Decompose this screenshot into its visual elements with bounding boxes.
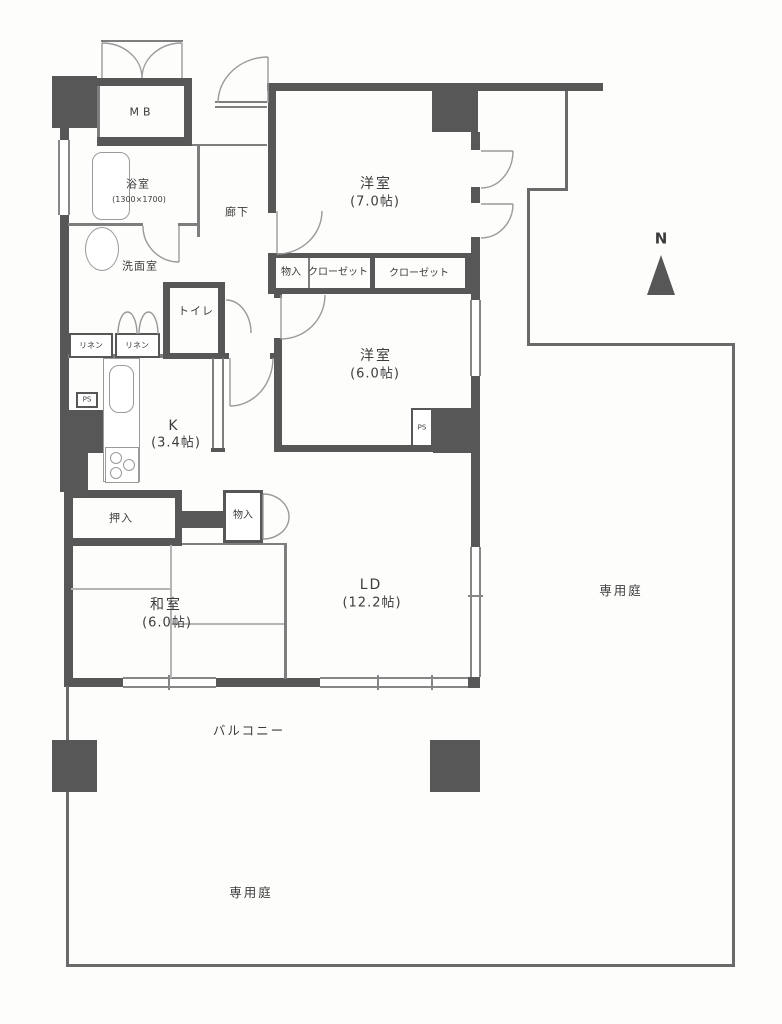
entrance-threshold-b xyxy=(215,106,267,108)
wall-toilet-left xyxy=(163,282,170,358)
garden-line-2 xyxy=(528,188,568,191)
room-label-linen-2: リネン xyxy=(125,342,149,350)
room-label-linen-1: リネン xyxy=(79,342,103,350)
garden-line-left xyxy=(66,686,69,967)
room-label-bathroom-size: (1300×1700) xyxy=(112,196,166,204)
wall-west2-left xyxy=(274,338,282,452)
wall-ps-block xyxy=(433,408,478,453)
wall-closet-row-left xyxy=(268,258,276,288)
north-arrow-icon xyxy=(647,255,675,295)
wall-bottom-2 xyxy=(216,678,320,687)
wall-hall-bath xyxy=(197,146,200,237)
room-label-living-dining-size: (12.2帖) xyxy=(342,597,401,610)
floor-plan: MB 浴室 (1300×1700) 洗面室 トイレ リネン リネン 廊下 物入 … xyxy=(0,0,782,1024)
garden-line-1 xyxy=(565,91,568,191)
room-label-oshiire: 押入 xyxy=(109,513,133,524)
west1-east-door-upper-arc xyxy=(480,150,513,188)
wall-kitchen-cap xyxy=(211,448,225,452)
wall-se-corner xyxy=(468,677,480,688)
room-label-west1: 洋室 xyxy=(360,177,392,191)
wall-mb-top xyxy=(97,78,187,86)
wall-right-1 xyxy=(471,132,480,150)
room-label-mb: MB xyxy=(129,107,154,118)
wall-oshiire-storage-stub xyxy=(180,511,223,528)
wall-toilet-bottom xyxy=(163,353,229,359)
wall-left-block-a xyxy=(60,410,103,453)
wall-west1-left xyxy=(268,91,276,213)
room-label-japanese-room-size: (6.0帖) xyxy=(142,617,192,630)
room-label-storage-1: 物入 xyxy=(281,268,301,278)
toilet-door-arc xyxy=(225,300,251,333)
wall-toilet-top xyxy=(163,282,225,288)
window-west2-east xyxy=(470,300,481,376)
label-ps-west2: PS xyxy=(418,425,427,432)
washbasin xyxy=(85,227,119,271)
window-ld-east xyxy=(470,547,481,677)
window-sash-tick xyxy=(468,595,483,597)
wall-porch-left xyxy=(184,78,192,146)
room-label-kitchen-size: (3.4帖) xyxy=(151,437,201,450)
wall-bottom-1 xyxy=(64,678,123,687)
wall-toilet-right xyxy=(218,282,225,358)
west2-door-arc xyxy=(280,294,325,339)
wall-oshiire-bottom xyxy=(64,538,182,546)
wall-closet-divider xyxy=(370,258,375,288)
room-label-closet-2: クローゼット xyxy=(389,269,449,279)
stove-burner xyxy=(123,459,135,471)
room-label-living-dining: LD xyxy=(360,578,383,592)
wall-mb-bottom xyxy=(97,137,187,146)
wall-left-1 xyxy=(60,128,69,140)
area-label-garden-bottom: 専用庭 xyxy=(229,887,273,900)
wall-west2-bottom xyxy=(274,445,434,452)
corridor-door-arc xyxy=(229,358,273,406)
wall-ne-corner-block xyxy=(432,88,478,132)
garden-line-4 xyxy=(527,343,735,346)
kitchen-sink xyxy=(109,365,134,413)
mb-doors-arc xyxy=(101,42,183,78)
north-label: N xyxy=(655,232,668,247)
room-label-hallway: 廊下 xyxy=(225,207,249,218)
garden-line-right xyxy=(732,343,735,967)
room-label-toilet: トイレ xyxy=(178,306,214,317)
tatami-line xyxy=(71,588,171,590)
wall-right-5 xyxy=(471,453,480,547)
wall-bath-bottom-b xyxy=(178,223,197,226)
garden-line-bottom xyxy=(68,964,735,967)
wall-right-2 xyxy=(471,187,480,203)
wall-closet-row-right xyxy=(465,253,479,293)
room-label-bathroom: 浴室 xyxy=(126,179,150,190)
balcony-pillar-right xyxy=(430,740,480,792)
label-ps-kitchen: PS xyxy=(83,397,92,404)
bathtub xyxy=(92,152,130,220)
wall-left-2 xyxy=(60,215,69,411)
ld-double-door-arc xyxy=(262,493,289,540)
room-label-washroom: 洗面室 xyxy=(122,261,158,272)
wall-mb-left-line xyxy=(97,86,100,137)
porch-step-line xyxy=(192,144,267,146)
wall-kitchen-channel-b xyxy=(222,358,224,448)
room-label-closet-1: クローゼット xyxy=(308,268,368,278)
balcony-pillar-left xyxy=(52,740,97,792)
wall-left-block-b xyxy=(60,453,88,492)
room-label-storage-2: 物入 xyxy=(233,511,253,521)
west1-door-arc xyxy=(276,211,322,254)
window-sash-tick xyxy=(377,675,379,690)
window-ld-balcony xyxy=(320,677,468,688)
wall-top-left-block xyxy=(52,76,97,128)
wall-washitsu-ld-divider xyxy=(284,543,287,679)
wall-washitsu-top-line xyxy=(182,543,284,545)
room-label-west1-size: (7.0帖) xyxy=(350,196,400,209)
area-label-balcony: バルコニー xyxy=(213,725,285,738)
window-sash-tick xyxy=(431,675,433,690)
wall-bath-bottom-a xyxy=(68,223,143,226)
west1-east-door-lower-arc xyxy=(480,203,513,238)
area-label-garden-right: 専用庭 xyxy=(599,585,643,598)
entrance-door-arc xyxy=(218,57,268,103)
stove-burner xyxy=(110,452,122,464)
room-label-west2: 洋室 xyxy=(360,349,392,363)
room-label-japanese-room: 和室 xyxy=(150,598,182,612)
wall-oshiire-top xyxy=(64,490,182,498)
linen-doors-arc xyxy=(117,311,159,334)
stove-burner xyxy=(110,467,122,479)
bathroom-door-arc xyxy=(143,225,179,262)
window-west-wall xyxy=(58,140,70,215)
garden-line-3 xyxy=(527,188,530,346)
wall-kitchen-channel-a xyxy=(212,358,214,448)
room-label-kitchen: K xyxy=(168,419,179,433)
room-label-west2-size: (6.0帖) xyxy=(350,368,400,381)
